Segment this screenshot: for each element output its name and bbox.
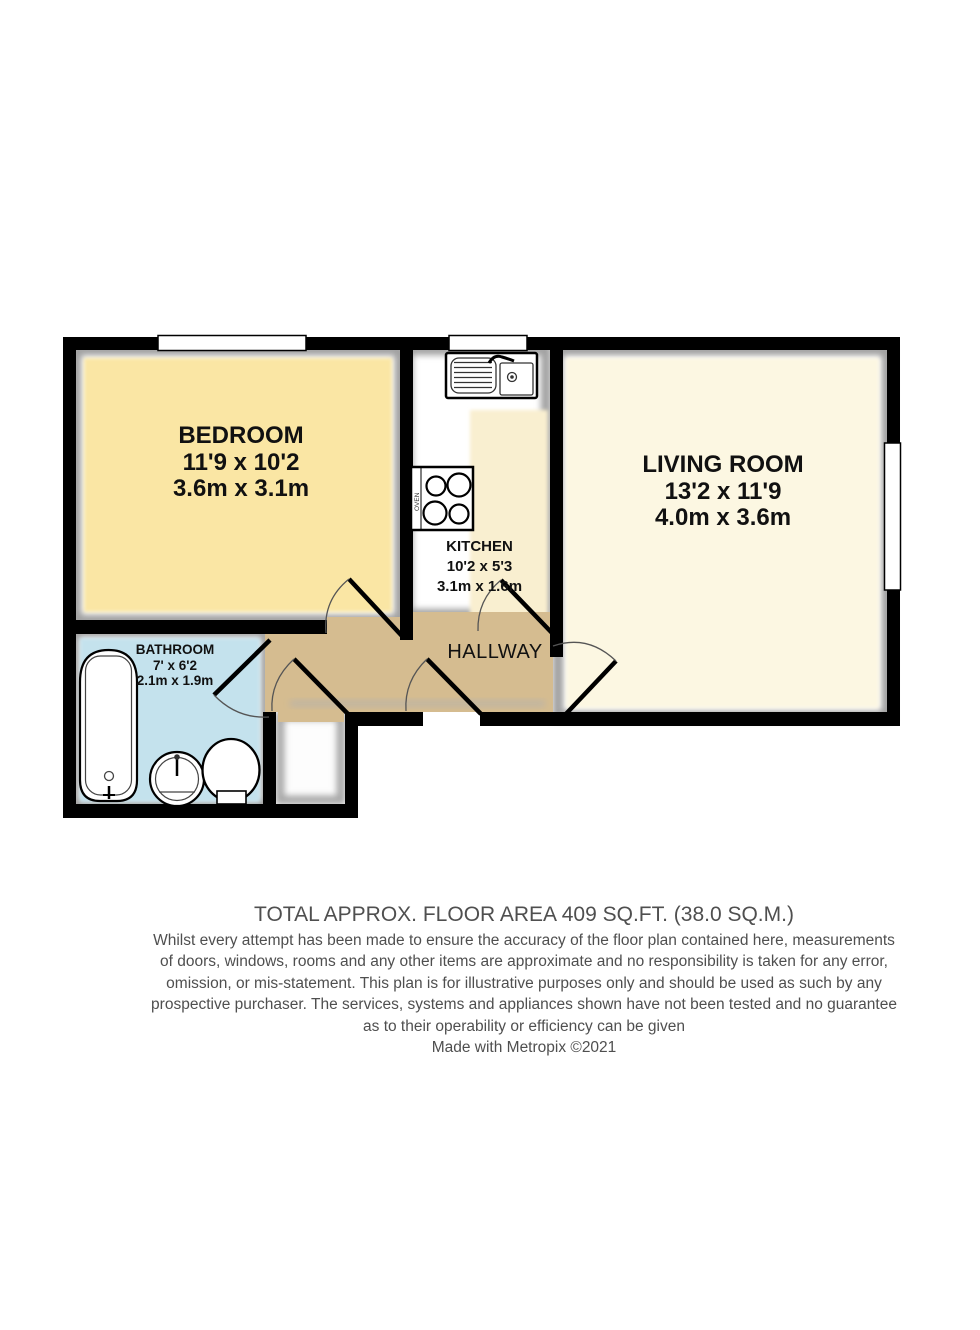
wall-bottom-left	[63, 804, 358, 818]
kitchen-metric: 3.1m x 1.6m	[407, 577, 552, 597]
wall-kitchen-living	[550, 337, 563, 657]
burner-icon	[450, 505, 469, 524]
wall-left	[63, 337, 76, 818]
total-area-title: TOTAL APPROX. FLOOR AREA 409 SQ.FT. (38.…	[68, 902, 980, 928]
living-room-window	[885, 443, 901, 590]
hob: OVEN	[411, 467, 473, 530]
hallway-label: HALLWAY	[420, 641, 570, 664]
hallway-name: HALLWAY	[420, 641, 570, 664]
bedroom-name: BEDROOM	[91, 423, 391, 450]
disclaimer-line: prospective purchaser. The services, sys…	[68, 994, 980, 1015]
disclaimer-line: as to their operability or efficiency ca…	[68, 1016, 980, 1037]
bedroom-imperial: 11'9 x 10'2	[91, 450, 391, 477]
basin	[150, 752, 204, 806]
bathroom-imperial: 7' x 6'2	[100, 658, 250, 674]
entrance-cupboard	[276, 712, 345, 804]
bedroom-metric: 3.6m x 3.1m	[91, 476, 391, 503]
bedroom-window	[158, 336, 306, 351]
burner-icon	[448, 474, 471, 497]
kitchen-name: KITCHEN	[407, 537, 552, 557]
footer: TOTAL APPROX. FLOOR AREA 409 SQ.FT. (38.…	[68, 902, 980, 1058]
bedroom-label: BEDROOM 11'9 x 10'2 3.6m x 3.1m	[91, 423, 391, 503]
living-room-metric: 4.0m x 3.6m	[573, 505, 873, 532]
wall-bathroom-right	[263, 712, 276, 818]
hob-oven-label: OVEN	[414, 492, 421, 511]
kitchen-sink	[446, 353, 537, 398]
floorplan-page: OVEN BEDROOM	[0, 0, 980, 1330]
bathroom-metric: 2.1m x 1.9m	[100, 673, 250, 689]
bathroom-name: BATHROOM	[100, 642, 250, 658]
wall-bottom-right	[480, 712, 900, 726]
kitchen-window	[449, 336, 527, 351]
living-room-label: LIVING ROOM 13'2 x 11'9 4.0m x 3.6m	[573, 452, 873, 532]
burner-icon	[427, 477, 446, 496]
wall-cupboard-right	[345, 712, 358, 818]
disclaimer-line: omission, or mis-statement. This plan is…	[68, 973, 980, 994]
wall-bedroom-bathroom	[63, 620, 327, 634]
living-room-room	[552, 344, 893, 722]
disclaimer-line: of doors, windows, rooms and any other i…	[68, 951, 980, 972]
living-room-imperial: 13'2 x 11'9	[573, 479, 873, 506]
burner-icon	[424, 502, 447, 525]
living-room-name: LIVING ROOM	[573, 452, 873, 479]
disclaimer-line: Whilst every attempt has been made to en…	[68, 930, 980, 951]
kitchen-label: KITCHEN 10'2 x 5'3 3.1m x 1.6m	[407, 537, 552, 597]
metropix-credit: Made with Metropix ©2021	[68, 1037, 980, 1058]
kitchen-imperial: 10'2 x 5'3	[407, 557, 552, 577]
bathroom-label: BATHROOM 7' x 6'2 2.1m x 1.9m	[100, 642, 250, 689]
